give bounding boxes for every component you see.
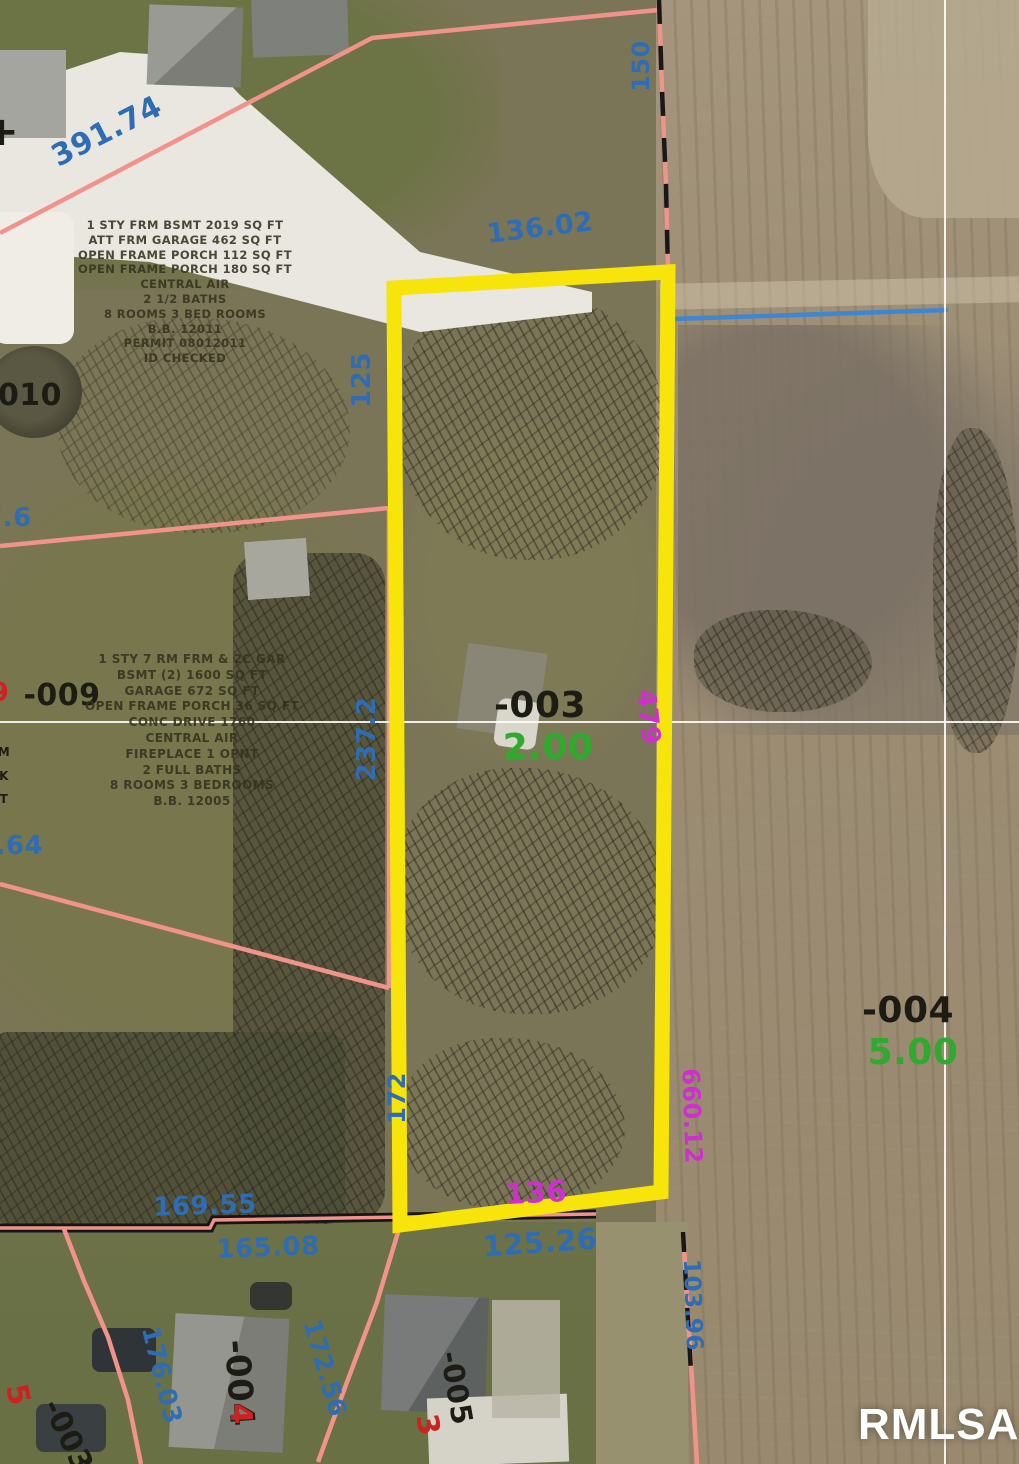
field-light-patch: [868, 0, 1019, 218]
desc-line: ATT FRM GARAGE 462 SQ FT: [25, 233, 345, 248]
map-label-dim-4-64: 4.64: [0, 833, 43, 859]
map-label-lotno-9-frag: 9: [0, 680, 9, 706]
house-roof-top-left: [147, 4, 244, 87]
trees-parcel-top: [398, 288, 666, 560]
desc-line: BSMT (2) 1600 SQ FT: [27, 668, 357, 684]
trees-right-edge: [933, 428, 1019, 753]
map-label-dim-150: 150: [629, 40, 653, 92]
map-label-dim-169-55: 169.55: [153, 1191, 257, 1221]
desc-line: FIREPLACE 1 OPNT: [27, 747, 357, 763]
tree-strip-left: [233, 553, 385, 1221]
desc-line: 8 ROOMS 3 BEDROOMS: [27, 778, 357, 794]
map-label-frag-t: T: [0, 793, 8, 805]
desc-line: OPEN FRAME PORCH 180 SQ FT: [25, 262, 345, 277]
map-label-dim-7-6: 7.6: [0, 505, 32, 531]
map-label-lotno-5: 5: [0, 1381, 34, 1408]
desc-line: B.B. 12005: [27, 794, 357, 810]
parcel-map[interactable]: 391.74136.02150125237.2172169.55165.0812…: [0, 0, 1019, 1464]
concrete-pad-bottom: [492, 1300, 560, 1418]
map-label-dim-237-2: 237.2: [354, 697, 380, 782]
desc-line: CENTRAL AIR: [25, 277, 345, 292]
map-label-dim-125: 125: [349, 352, 375, 408]
vehicle-2: [36, 1404, 106, 1452]
desc-line: 1 STY 7 RM FRM & 2C GAR: [27, 652, 357, 668]
driveway-pad-left: [0, 212, 74, 344]
map-label-dim-136-02: 136.02: [485, 208, 595, 248]
trees-right-of-road: [694, 610, 872, 712]
road-centerline-bottom: [683, 1232, 697, 1464]
verge-bottom: [596, 1222, 688, 1464]
map-label-dim-136: 136: [504, 1177, 567, 1209]
field-dark-patch: [678, 325, 1019, 735]
desc-line: 2 1/2 BATHS: [25, 292, 345, 307]
map-label-dim-125-26: 125.26: [482, 1225, 599, 1262]
grass-mid-left: [0, 470, 410, 1070]
desc-line: 2 FULL BATHS: [27, 763, 357, 779]
trees-top-left-sparse: [58, 318, 350, 533]
map-label-dim-172-56: 172.56: [299, 1317, 350, 1420]
trees-parcel-bottom: [400, 1038, 625, 1210]
road-centerline-top-dashes: [659, 0, 668, 272]
desc-line: CENTRAL AIR: [27, 731, 357, 747]
plowed-field-right: [656, 0, 1019, 1464]
lawn-top-left: [0, 0, 500, 290]
map-label-dim-479: 479: [632, 688, 664, 746]
vehicle-1: [92, 1328, 156, 1372]
property-desc-south: 1 STY 7 RM FRM & 2C GARBSMT (2) 1600 SQ …: [27, 652, 357, 810]
desc-line: GARAGE 672 SQ FT: [27, 684, 357, 700]
shed-left: [244, 538, 310, 600]
house-roof-bottom-left: [169, 1313, 290, 1453]
boundary-line-south-pink: [0, 1214, 596, 1228]
trees-parcel-middle: [396, 768, 666, 1014]
map-label-dim-172: 172: [385, 1072, 409, 1124]
desc-line: CONC DRIVE 1760: [27, 715, 357, 731]
boundary-line-south-black: [0, 1214, 596, 1228]
map-label-frag-m: M: [0, 746, 10, 758]
desc-line: ID CHECKED: [25, 351, 345, 366]
road-centerline-top: [659, 0, 668, 272]
property-desc-north: 1 STY FRM BSMT 2019 SQ FTATT FRM GARAGE …: [25, 218, 345, 366]
map-label-dim-103-96: 103.96: [679, 1259, 705, 1352]
map-label-dim-165-08: 165.08: [216, 1233, 320, 1263]
map-label-lot-010: 010: [0, 381, 62, 411]
map-label-lot-009: -009: [23, 681, 100, 711]
map-label-frag-k: K: [0, 770, 9, 782]
water-line-blue: [673, 310, 948, 319]
farm-track: [660, 276, 1019, 310]
desc-line: 8 ROOMS 3 BED ROOMS: [25, 307, 345, 322]
desc-line: PERMIT 08012011: [25, 336, 345, 351]
boundary-line-west-upper: [0, 508, 389, 546]
rmlsa-watermark: RMLSA: [858, 1400, 1019, 1450]
vehicle-3: [250, 1282, 292, 1310]
desc-line: OPEN FRAME PORCH 36 SQ FT: [27, 699, 357, 715]
map-label-dim-660-12: 660.12: [678, 1068, 705, 1164]
house-roof-top-center: [251, 0, 349, 58]
map-label-lot-004: -004: [862, 993, 954, 1029]
boundary-line-west-lower: [0, 884, 389, 988]
street-top-left: [0, 40, 600, 340]
desc-line: OPEN FRAME PORCH 112 SQ FT: [25, 248, 345, 263]
tree-canopy-circle: [0, 346, 82, 438]
desc-line: B.B. 12011: [25, 322, 345, 337]
map-label-acres-5-00: 5.00: [868, 1035, 959, 1071]
tree-mass-bottom-left: [0, 1032, 345, 1224]
desc-line: 1 STY FRM BSMT 2019 SQ FT: [25, 218, 345, 233]
house-roof-top-edge: [0, 50, 66, 138]
shed-white-patch: [493, 697, 541, 750]
road-centerline-bottom-dashes: [683, 1232, 691, 1372]
